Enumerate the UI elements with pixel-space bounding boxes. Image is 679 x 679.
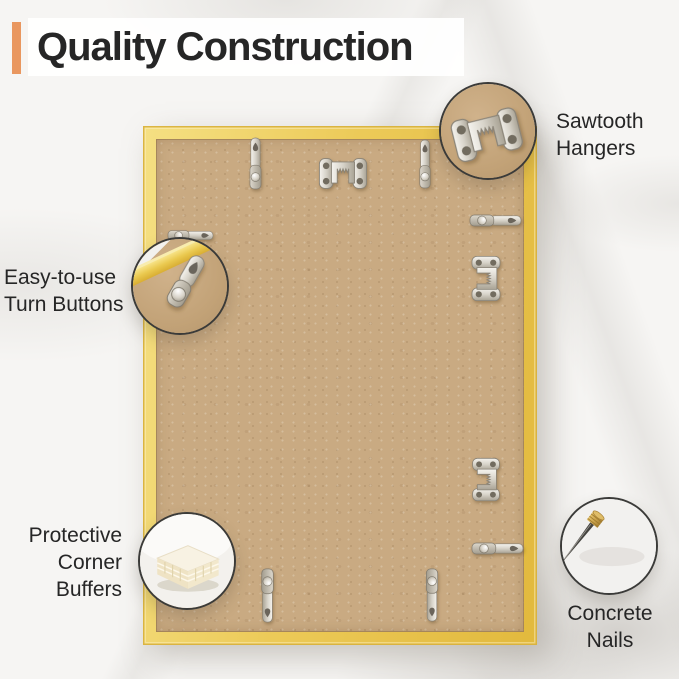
callout-circle-concrete-nails [560, 497, 658, 595]
turn-button-icon [133, 239, 227, 333]
corner-buffer-icon [140, 514, 234, 608]
turn-button-icon [258, 568, 277, 623]
callout-circle-corner-buffers [138, 512, 236, 610]
product-infographic-canvas: Quality Construction Sawtooth Hangers [0, 0, 679, 679]
concrete-nail-icon [562, 499, 656, 593]
turn-button-icon [423, 568, 441, 622]
sawtooth-hanger-icon [470, 255, 502, 302]
callout-circle-turn-buttons [131, 237, 229, 335]
turn-button-icon [468, 540, 527, 557]
callout-circle-sawtooth-hangers [439, 82, 537, 180]
page-title: Quality Construction [37, 25, 413, 70]
corner-buffers-label: Protective Corner Buffers [8, 522, 122, 603]
turn-button-icon [247, 135, 264, 192]
turn-buttons-label: Easy-to-use Turn Buttons [4, 264, 123, 318]
turn-button-icon [467, 212, 524, 229]
accent-bar [12, 22, 21, 74]
sawtooth-hanger-icon [441, 84, 535, 178]
concrete-nails-label: Concrete Nails [548, 600, 672, 654]
sawtooth-hanger-icon [470, 457, 502, 502]
turn-button-icon [417, 139, 433, 189]
sawtooth-hanger-icon [318, 157, 368, 190]
sawtooth-hangers-label: Sawtooth Hangers [556, 108, 644, 162]
